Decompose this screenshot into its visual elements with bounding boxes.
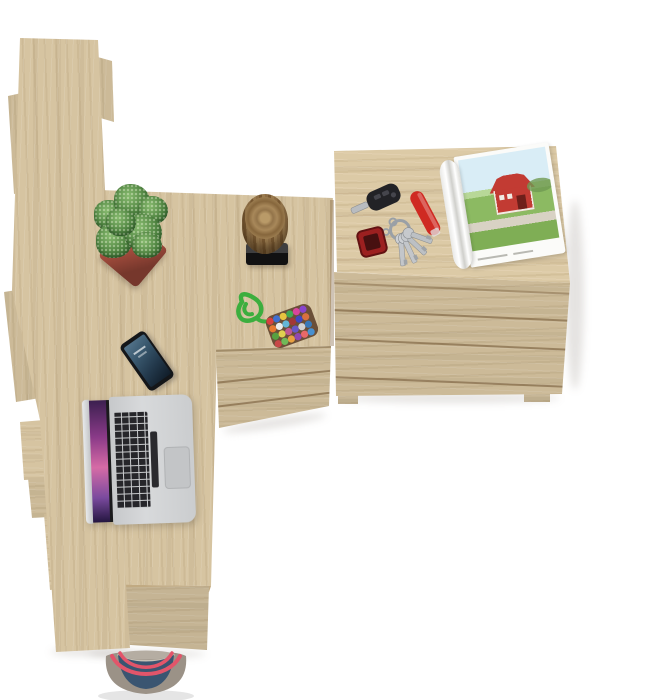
chest-drawer-groove-3: [332, 376, 594, 389]
potted-plant: [94, 182, 172, 292]
laptop-keyboard: [113, 412, 150, 509]
barn-window: [507, 193, 513, 199]
chest-drawer-groove-2: [332, 338, 594, 352]
barn: [487, 171, 538, 216]
barn-door: [516, 194, 527, 209]
keychain-cord: [238, 294, 261, 320]
chest-top-lip-seam: [332, 282, 594, 296]
laptop-trackpad: [164, 446, 191, 489]
plant-leaf: [132, 232, 162, 258]
chest-front: [334, 272, 572, 406]
magazine: [437, 140, 568, 276]
pedestal-drawer-groove-1: [214, 369, 341, 384]
stump-decor: [240, 194, 292, 268]
plant-leaf: [106, 208, 136, 236]
magazine-photo: [458, 147, 559, 252]
magazine-caption-line: [513, 250, 533, 255]
desk-chest-seam: [330, 200, 334, 346]
scene-root: { "meta": { "scene_label": "Top-down pro…: [0, 0, 648, 700]
car-key-fob: [350, 181, 403, 220]
pompom-keychain: [230, 280, 318, 352]
chest-drawer-groove-1: [332, 309, 594, 323]
pompom-pouch: [264, 302, 318, 350]
laptop: [82, 394, 196, 526]
red-key-fob: [356, 226, 388, 258]
pedestal-drawer-groove-2: [214, 390, 341, 408]
barn-window: [499, 195, 505, 201]
magazine-caption-line: [478, 254, 508, 261]
tote-bag: [94, 640, 198, 700]
